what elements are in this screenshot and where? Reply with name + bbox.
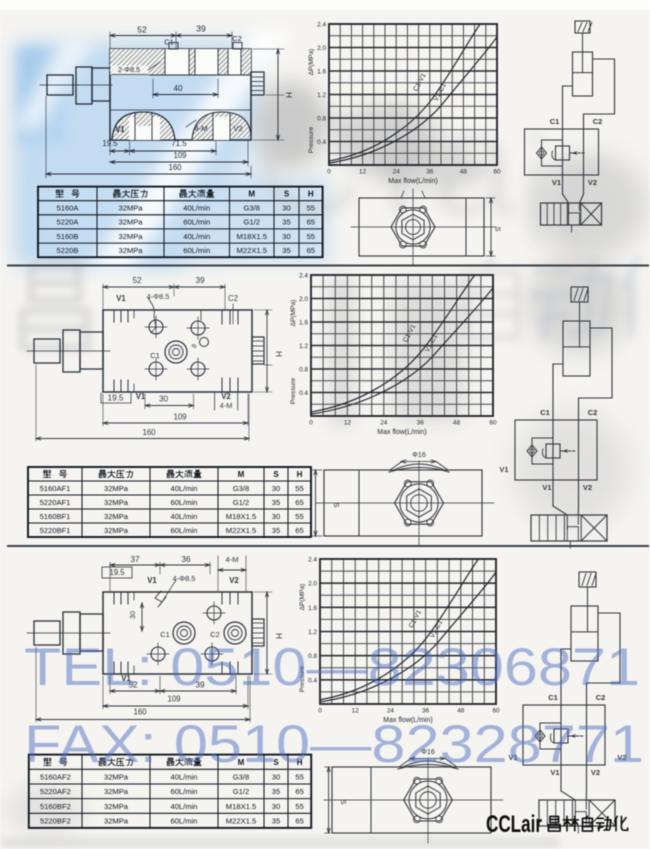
svg-text:V2: V2 bbox=[229, 576, 239, 585]
svg-text:4-M: 4-M bbox=[225, 555, 238, 564]
svg-text:32MPa: 32MPa bbox=[104, 816, 129, 825]
svg-text:0.8: 0.8 bbox=[317, 116, 326, 123]
svg-text:65: 65 bbox=[295, 787, 303, 796]
svg-text:32MPa: 32MPa bbox=[118, 218, 143, 227]
svg-text:30: 30 bbox=[272, 802, 280, 811]
svg-text:36: 36 bbox=[417, 420, 425, 427]
svg-text:C2: C2 bbox=[228, 294, 238, 303]
svg-text:71.5: 71.5 bbox=[171, 139, 187, 148]
svg-text:5220BF1: 5220BF1 bbox=[40, 526, 71, 535]
svg-text:35: 35 bbox=[282, 218, 290, 227]
svg-text:19.5: 19.5 bbox=[109, 568, 125, 577]
svg-text:35: 35 bbox=[272, 526, 280, 535]
svg-text:4-M: 4-M bbox=[194, 124, 207, 133]
svg-text:32MPa: 32MPa bbox=[118, 204, 143, 213]
svg-text:Max flow(L/min): Max flow(L/min) bbox=[388, 178, 437, 185]
svg-text:39: 39 bbox=[195, 276, 205, 285]
svg-text:M18X1.5: M18X1.5 bbox=[226, 512, 256, 521]
svg-text:0.4: 0.4 bbox=[299, 390, 308, 397]
svg-text:Φ16: Φ16 bbox=[412, 450, 426, 459]
svg-text:30: 30 bbox=[159, 395, 169, 404]
svg-text:36: 36 bbox=[422, 708, 430, 715]
svg-text:M22X1.5: M22X1.5 bbox=[237, 246, 267, 255]
svg-text:V1: V1 bbox=[552, 178, 561, 187]
svg-text:5160BF2: 5160BF2 bbox=[40, 802, 71, 811]
svg-text:G3/8: G3/8 bbox=[233, 484, 249, 493]
svg-text:36: 36 bbox=[426, 169, 434, 176]
svg-text:Pressure: Pressure bbox=[290, 377, 297, 404]
svg-text:Max flow(L/min): Max flow(L/min) bbox=[377, 429, 426, 436]
svg-text:4-Φ8.5: 4-Φ8.5 bbox=[147, 292, 170, 301]
svg-text:C1: C1 bbox=[164, 38, 174, 47]
svg-text:G3/8: G3/8 bbox=[244, 204, 260, 213]
svg-text:C1: C1 bbox=[150, 351, 159, 360]
svg-text:5220A: 5220A bbox=[57, 218, 80, 227]
svg-text:65: 65 bbox=[295, 498, 303, 507]
svg-text:ir: ir bbox=[520, 106, 603, 274]
svg-text:V2: V2 bbox=[588, 178, 597, 187]
svg-text:32MPa: 32MPa bbox=[104, 498, 129, 507]
svg-text:1.6: 1.6 bbox=[299, 320, 308, 327]
svg-text:S: S bbox=[339, 799, 348, 804]
svg-text:12: 12 bbox=[344, 420, 352, 427]
svg-text:55: 55 bbox=[295, 484, 303, 493]
svg-text:19.5: 19.5 bbox=[102, 139, 118, 148]
svg-text:109: 109 bbox=[173, 151, 186, 160]
svg-text:19.5: 19.5 bbox=[108, 394, 124, 403]
svg-text:65: 65 bbox=[295, 816, 303, 825]
svg-text:2.4: 2.4 bbox=[317, 22, 326, 29]
svg-text:40L/min: 40L/min bbox=[170, 802, 197, 811]
svg-text:H: H bbox=[297, 470, 303, 479]
svg-text:V1: V1 bbox=[136, 392, 146, 401]
svg-text:32MPa: 32MPa bbox=[104, 802, 129, 811]
svg-text:30: 30 bbox=[272, 484, 280, 493]
svg-text:2.4: 2.4 bbox=[299, 273, 308, 280]
svg-text:1.2: 1.2 bbox=[317, 92, 326, 99]
svg-text:36: 36 bbox=[181, 555, 191, 564]
svg-text:Pressure: Pressure bbox=[308, 126, 315, 153]
svg-text:0.4: 0.4 bbox=[317, 139, 326, 146]
svg-text:2.0: 2.0 bbox=[299, 296, 308, 303]
svg-text:12: 12 bbox=[359, 169, 367, 176]
svg-text:60L/min: 60L/min bbox=[183, 246, 210, 255]
svg-text:M: M bbox=[248, 190, 255, 199]
svg-text:V1: V1 bbox=[542, 483, 551, 492]
svg-text:40L/min: 40L/min bbox=[170, 484, 197, 493]
svg-text:60: 60 bbox=[493, 169, 501, 176]
svg-text:32MPa: 32MPa bbox=[104, 526, 129, 535]
svg-text:109: 109 bbox=[173, 413, 186, 422]
svg-text:32MPa: 32MPa bbox=[104, 512, 129, 521]
svg-text:S: S bbox=[332, 502, 341, 507]
svg-text:37: 37 bbox=[130, 555, 140, 564]
svg-text:V1: V1 bbox=[499, 465, 508, 474]
svg-text:40L/min: 40L/min bbox=[183, 204, 210, 213]
svg-text:H: H bbox=[308, 190, 314, 199]
svg-text:60L/min: 60L/min bbox=[170, 526, 197, 535]
svg-text:C2: C2 bbox=[232, 34, 242, 43]
svg-text:5160B: 5160B bbox=[57, 232, 79, 241]
svg-text:40: 40 bbox=[174, 84, 183, 93]
svg-text:V1: V1 bbox=[116, 294, 126, 303]
svg-text:30: 30 bbox=[282, 232, 290, 241]
svg-text:S: S bbox=[494, 226, 503, 231]
svg-text:52: 52 bbox=[137, 25, 147, 35]
svg-text:2-Φ8.5: 2-Φ8.5 bbox=[118, 65, 140, 74]
svg-text:H: H bbox=[284, 92, 293, 98]
svg-text:1.6: 1.6 bbox=[317, 69, 326, 76]
svg-text:30: 30 bbox=[272, 512, 280, 521]
svg-text:0: 0 bbox=[309, 420, 313, 427]
svg-text:0: 0 bbox=[327, 169, 331, 176]
svg-text:40L/min: 40L/min bbox=[170, 512, 197, 521]
svg-text:60L/min: 60L/min bbox=[183, 218, 210, 227]
svg-text:1.2: 1.2 bbox=[308, 629, 317, 636]
svg-text:V2: V2 bbox=[583, 483, 592, 492]
svg-text:48: 48 bbox=[457, 708, 465, 715]
svg-text:32MPa: 32MPa bbox=[104, 787, 129, 796]
svg-text:60L/min: 60L/min bbox=[170, 498, 197, 507]
svg-text:TEL: 0510—82306871: TEL: 0510—82306871 bbox=[24, 638, 640, 697]
svg-text:4-M: 4-M bbox=[220, 401, 233, 410]
svg-text:35: 35 bbox=[272, 787, 280, 796]
svg-text:32MPa: 32MPa bbox=[104, 484, 129, 493]
svg-text:4-Φ8.5: 4-Φ8.5 bbox=[173, 574, 196, 583]
svg-text:30: 30 bbox=[128, 611, 137, 619]
svg-text:60L/min: 60L/min bbox=[170, 816, 197, 825]
svg-text:M: M bbox=[238, 470, 245, 479]
svg-text:G1/2: G1/2 bbox=[233, 498, 249, 507]
svg-text:S: S bbox=[273, 470, 279, 479]
svg-text:30: 30 bbox=[282, 204, 290, 213]
svg-text:1.6: 1.6 bbox=[308, 605, 317, 612]
svg-text:V1: V1 bbox=[147, 576, 157, 585]
svg-text:C1: C1 bbox=[540, 408, 550, 417]
svg-text:35: 35 bbox=[282, 246, 290, 255]
svg-text:160: 160 bbox=[142, 428, 156, 437]
svg-text:ΔP(MPa): ΔP(MPa) bbox=[308, 49, 315, 76]
svg-text:2.4: 2.4 bbox=[308, 557, 317, 564]
svg-text:65: 65 bbox=[307, 246, 315, 255]
svg-text:M22X1.5: M22X1.5 bbox=[226, 816, 256, 825]
svg-text:ΔP(MPa): ΔP(MPa) bbox=[290, 300, 297, 327]
svg-text:55: 55 bbox=[307, 232, 315, 241]
svg-text:V2: V2 bbox=[221, 392, 231, 401]
svg-text:12: 12 bbox=[352, 708, 360, 715]
svg-text:5220AF1: 5220AF1 bbox=[40, 498, 71, 507]
svg-text:H: H bbox=[274, 351, 283, 357]
svg-text:5160A: 5160A bbox=[57, 204, 80, 213]
svg-text:55: 55 bbox=[295, 512, 303, 521]
svg-text:32MPa: 32MPa bbox=[118, 246, 143, 255]
svg-text:48: 48 bbox=[453, 420, 461, 427]
svg-text:24: 24 bbox=[380, 420, 388, 427]
svg-text:ΔP(MPa): ΔP(MPa) bbox=[299, 584, 306, 611]
svg-text:35: 35 bbox=[272, 498, 280, 507]
svg-text:60: 60 bbox=[489, 420, 497, 427]
svg-text:5160BF1: 5160BF1 bbox=[40, 512, 71, 521]
svg-text:5220AF2: 5220AF2 bbox=[40, 787, 71, 796]
svg-text:52: 52 bbox=[132, 276, 142, 285]
svg-text:24: 24 bbox=[387, 708, 395, 715]
svg-text:32MPa: 32MPa bbox=[118, 232, 143, 241]
svg-text:M18X1.5: M18X1.5 bbox=[237, 232, 267, 241]
svg-text:5220BF2: 5220BF2 bbox=[40, 816, 71, 825]
svg-text:5160AF1: 5160AF1 bbox=[40, 484, 71, 493]
svg-text:60L/min: 60L/min bbox=[170, 787, 197, 796]
svg-text:65: 65 bbox=[295, 526, 303, 535]
svg-text:65: 65 bbox=[307, 218, 315, 227]
svg-text:G1/2: G1/2 bbox=[233, 787, 249, 796]
svg-text:1.2: 1.2 bbox=[299, 343, 308, 350]
svg-text:2.0: 2.0 bbox=[317, 45, 326, 52]
svg-text:FAX: 0510—82328771: FAX: 0510—82328771 bbox=[24, 715, 644, 774]
svg-text:5220B: 5220B bbox=[57, 246, 79, 255]
svg-text:C1: C1 bbox=[550, 117, 560, 126]
svg-text:48: 48 bbox=[460, 169, 468, 176]
svg-text:V1: V1 bbox=[115, 125, 125, 134]
svg-text:35: 35 bbox=[272, 816, 280, 825]
svg-text:V2: V2 bbox=[233, 124, 242, 133]
svg-text:C2: C2 bbox=[588, 408, 598, 417]
svg-text:M22X1.5: M22X1.5 bbox=[226, 526, 256, 535]
svg-text:2.0: 2.0 bbox=[308, 581, 317, 588]
svg-text:60: 60 bbox=[492, 708, 500, 715]
svg-text:CCLair: CCLair bbox=[486, 811, 542, 838]
svg-text:55: 55 bbox=[295, 802, 303, 811]
svg-text:24: 24 bbox=[393, 169, 401, 176]
svg-text:M18X1.5: M18X1.5 bbox=[226, 802, 256, 811]
svg-text:0.8: 0.8 bbox=[299, 367, 308, 374]
svg-text:55: 55 bbox=[307, 204, 315, 213]
svg-text:0: 0 bbox=[318, 708, 322, 715]
svg-text:39: 39 bbox=[196, 24, 206, 34]
svg-text:C2: C2 bbox=[593, 117, 603, 126]
svg-text:160: 160 bbox=[168, 163, 182, 172]
svg-text:G1/2: G1/2 bbox=[244, 218, 260, 227]
svg-text:S: S bbox=[284, 190, 290, 199]
svg-text:40L/min: 40L/min bbox=[183, 232, 210, 241]
